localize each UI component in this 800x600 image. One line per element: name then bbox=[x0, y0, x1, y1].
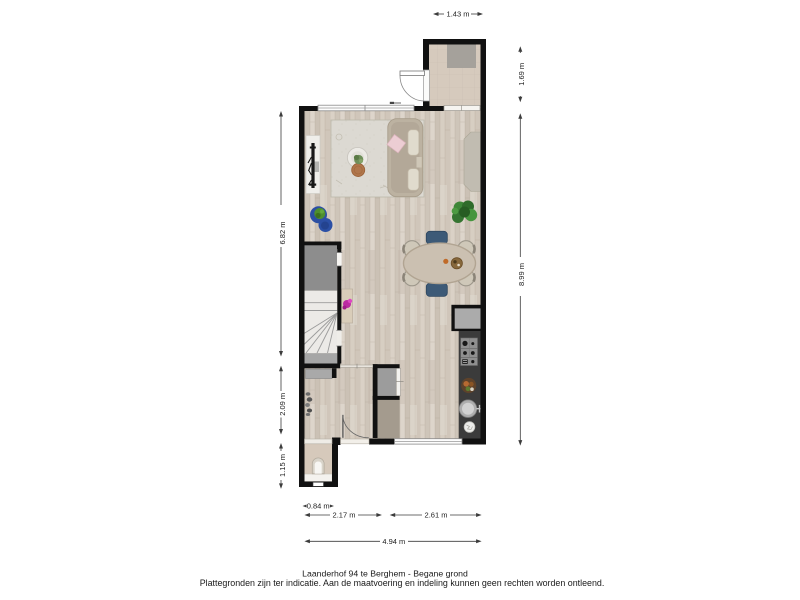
svg-text:2.61 m: 2.61 m bbox=[425, 511, 448, 520]
svg-text:1.69 m: 1.69 m bbox=[517, 63, 526, 86]
svg-text:1.43 m: 1.43 m bbox=[447, 10, 470, 19]
svg-text:1.15 m: 1.15 m bbox=[278, 454, 287, 477]
svg-text:2.17 m: 2.17 m bbox=[333, 511, 356, 520]
svg-text:Laanderhof 94 te Berghem - Beg: Laanderhof 94 te Berghem - Begane grond bbox=[302, 569, 468, 579]
svg-text:4.94 m: 4.94 m bbox=[382, 537, 405, 546]
svg-text:2.09 m: 2.09 m bbox=[278, 393, 287, 416]
svg-text:Plattegronden zijn ter indicat: Plattegronden zijn ter indicatie. Aan de… bbox=[200, 578, 605, 588]
svg-text:6.82 m: 6.82 m bbox=[278, 222, 287, 245]
svg-text:8.99 m: 8.99 m bbox=[517, 263, 526, 286]
svg-text:0.84 m: 0.84 m bbox=[307, 502, 330, 511]
